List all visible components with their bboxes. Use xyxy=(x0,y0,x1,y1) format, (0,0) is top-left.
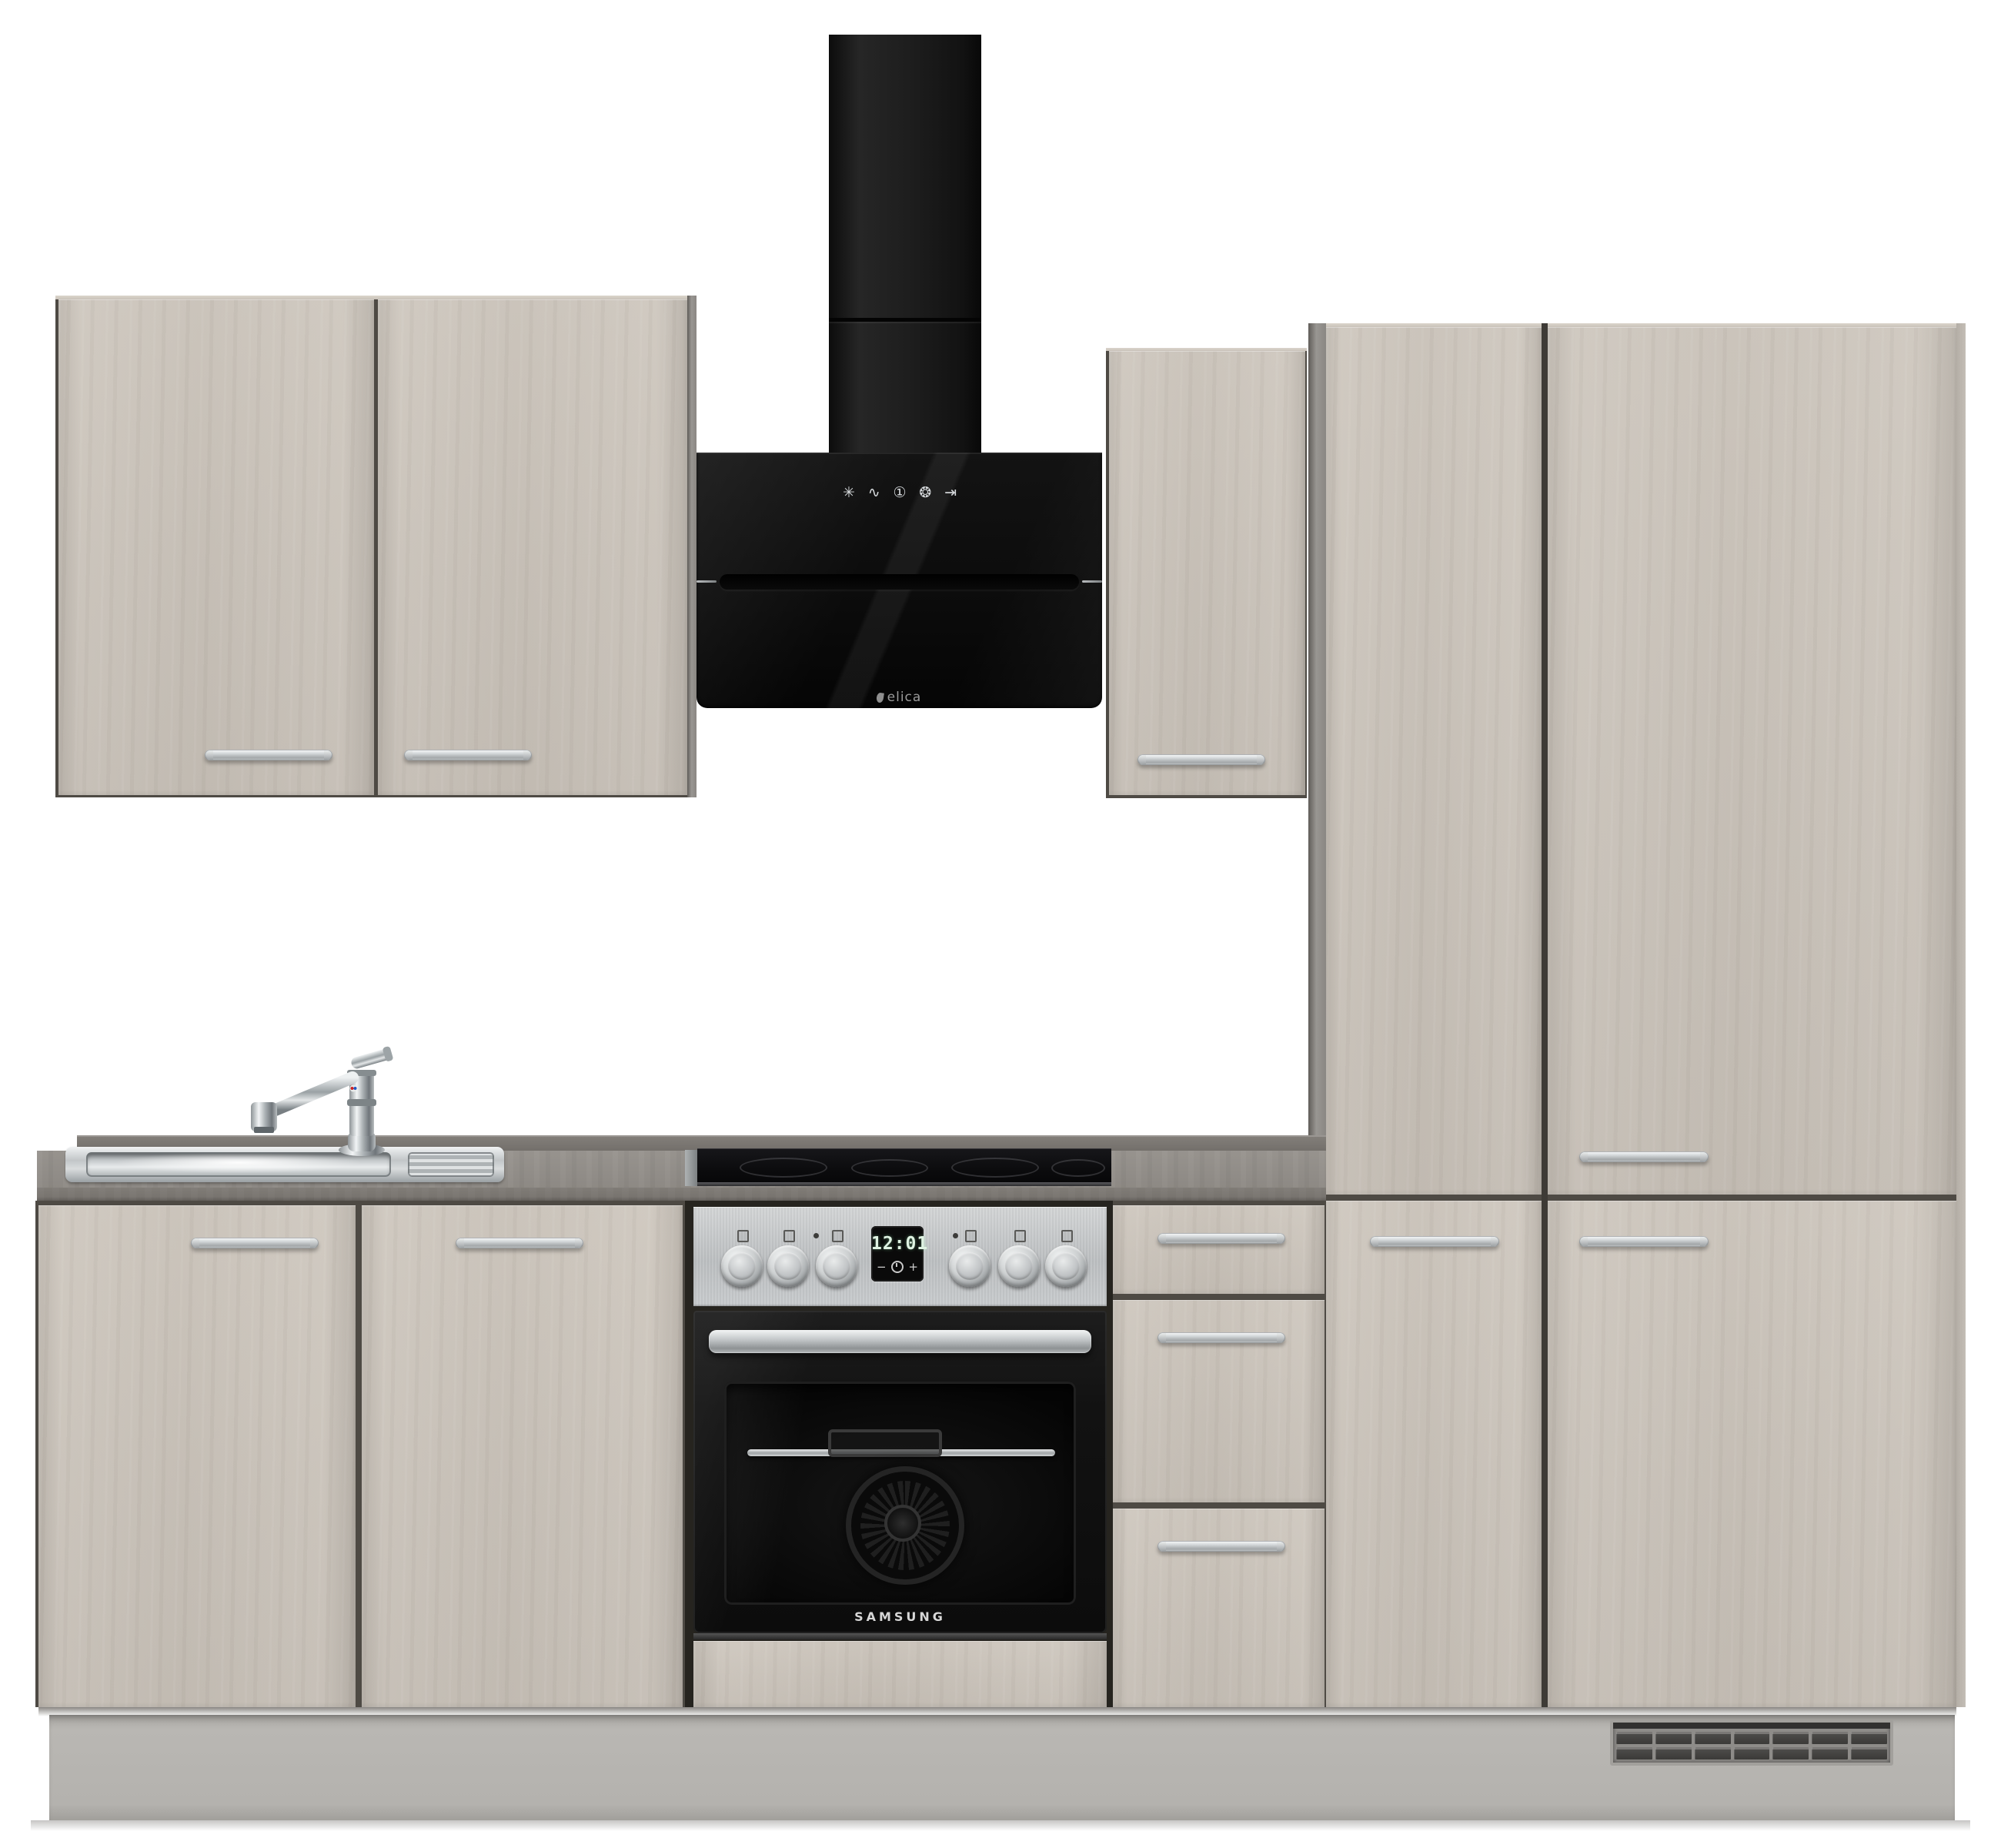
wall-cabinet-left-door-2[interactable] xyxy=(378,299,687,795)
cook-zone-icon xyxy=(1014,1230,1026,1242)
cook-zone xyxy=(740,1158,827,1178)
plinth-vent-grille xyxy=(1610,1719,1893,1766)
grille-slat xyxy=(1851,1732,1887,1744)
grille-slat xyxy=(1812,1732,1848,1744)
cook-zone xyxy=(951,1158,1039,1178)
wall-cabinet-left-door-1[interactable] xyxy=(58,299,374,795)
door-handle[interactable] xyxy=(191,1238,319,1248)
tall-cabinet-left-lower-door[interactable] xyxy=(1326,1201,1542,1707)
grille-slat xyxy=(1695,1747,1731,1759)
grille-slat xyxy=(1812,1747,1848,1759)
plinth xyxy=(49,1715,1955,1820)
oven-clock-display: 12:01 − + xyxy=(871,1226,924,1282)
elica-leaf-icon xyxy=(876,692,884,703)
oven-knob[interactable] xyxy=(816,1245,857,1287)
floor-shadow xyxy=(31,1820,1970,1831)
cook-zone-icon xyxy=(1061,1230,1073,1242)
cabinet-side-panel xyxy=(687,296,697,797)
sink-base-door-2[interactable] xyxy=(362,1205,683,1707)
hood-brand-text: elica xyxy=(887,690,922,705)
boost-icon[interactable]: ∿ xyxy=(868,486,880,500)
tall-cabinet-block xyxy=(1326,323,1956,1707)
oven-knob[interactable] xyxy=(998,1245,1040,1287)
oven-brand-logo: SAMSUNG xyxy=(693,1609,1107,1624)
timer-icon[interactable]: ⇥ xyxy=(944,486,957,500)
tall-cabinet-right-upper-door[interactable] xyxy=(1548,327,1956,1195)
drawer-3[interactable] xyxy=(1113,1509,1325,1707)
tall-cabinet-divider xyxy=(1542,323,1548,1707)
oven-knob[interactable] xyxy=(1045,1245,1087,1287)
oven-hinge-strip xyxy=(693,1633,1107,1639)
countertop-front-edge xyxy=(37,1188,1326,1201)
clock-plus-button[interactable]: + xyxy=(908,1260,918,1274)
grille-slat xyxy=(1655,1732,1692,1744)
oven-tray-outline xyxy=(828,1429,942,1457)
tall-unit-right-side xyxy=(1956,323,1966,1707)
hood-touch-controls: ✳ ∿ ① ❂ ⇥ xyxy=(843,483,957,502)
door-handle[interactable] xyxy=(1579,1236,1709,1247)
grille-slat xyxy=(1772,1747,1809,1759)
grille-slat xyxy=(1772,1732,1809,1744)
oven-door-handle[interactable] xyxy=(709,1330,1091,1353)
hood-trim-right xyxy=(1082,580,1102,583)
hood-intake-slot xyxy=(720,574,1079,590)
oven-knob[interactable] xyxy=(767,1245,809,1287)
oven-clock-time: 12:01 xyxy=(871,1234,924,1254)
cooktop-trim-left xyxy=(685,1150,697,1186)
faucet[interactable] xyxy=(215,1041,396,1156)
cook-zone-icon xyxy=(965,1230,977,1242)
wall-cabinet-right-door[interactable] xyxy=(1109,351,1305,795)
grille-slats xyxy=(1613,1729,1890,1763)
door-handle[interactable] xyxy=(404,750,532,760)
grille-slat xyxy=(1734,1732,1770,1744)
oven-door-window xyxy=(724,1382,1076,1605)
drawer-2[interactable] xyxy=(1113,1300,1325,1502)
grille-slat xyxy=(1851,1747,1887,1759)
cooktop-front-bevel xyxy=(697,1182,1111,1186)
kitchen-product-image: ✳ ∿ ① ❂ ⇥ elica xyxy=(0,0,2001,1848)
drawer-1[interactable] xyxy=(1113,1205,1325,1294)
door-handle[interactable] xyxy=(1579,1151,1709,1162)
oven-clock-buttons: − + xyxy=(871,1260,924,1274)
oven-knob[interactable] xyxy=(949,1245,990,1287)
tall-unit-side-panel xyxy=(1308,323,1326,1135)
grille-slat xyxy=(1655,1747,1692,1759)
oven-housing: 12:01 − + SAMSUNG xyxy=(685,1201,1113,1707)
sink-drainer xyxy=(408,1152,494,1177)
cook-zone-icon xyxy=(737,1230,749,1242)
wall-cabinet-left xyxy=(55,296,697,797)
range-hood: ✳ ∿ ① ❂ ⇥ elica xyxy=(697,453,1102,708)
hood-trim-left xyxy=(697,580,717,583)
cook-zone-icon xyxy=(832,1230,843,1242)
fan-speed-icon[interactable]: ✳ xyxy=(843,486,855,500)
wall-cabinet-right xyxy=(1106,348,1307,798)
door-handle[interactable] xyxy=(1137,754,1265,765)
cook-zone xyxy=(851,1159,928,1177)
oven-control-panel: 12:01 − + xyxy=(693,1207,1107,1306)
power-icon[interactable]: ① xyxy=(893,486,906,500)
oven-fan-hub xyxy=(884,1505,921,1542)
hood-brand-logo: elica xyxy=(853,690,945,705)
grille-slat xyxy=(1734,1747,1770,1759)
door-handle[interactable] xyxy=(1370,1236,1499,1247)
drawer-handle[interactable] xyxy=(1158,1233,1285,1244)
door-handle[interactable] xyxy=(456,1238,583,1248)
grille-slat xyxy=(1616,1747,1652,1759)
indicator-dot xyxy=(953,1233,958,1238)
grille-top-slot xyxy=(1613,1723,1890,1729)
clock-minus-button[interactable]: − xyxy=(877,1260,887,1274)
cook-zone xyxy=(1051,1159,1105,1177)
oven-door[interactable]: SAMSUNG xyxy=(693,1311,1107,1633)
door-handle[interactable] xyxy=(205,750,332,760)
chimney-joint xyxy=(829,318,981,322)
indicator-dot xyxy=(813,1233,819,1238)
tall-cabinet-left-upper-door[interactable] xyxy=(1326,327,1542,1195)
drawer-handle[interactable] xyxy=(1158,1332,1285,1343)
hood-chimney xyxy=(829,35,981,453)
oven-knob[interactable] xyxy=(721,1245,763,1287)
grille-slat xyxy=(1695,1732,1731,1744)
cook-zone-icon xyxy=(783,1230,795,1242)
oven-base-filler xyxy=(693,1641,1107,1707)
drawer-handle[interactable] xyxy=(1158,1541,1285,1552)
light-icon[interactable]: ❂ xyxy=(919,486,931,500)
sink-base-door-1[interactable] xyxy=(38,1205,356,1707)
clock-icon xyxy=(891,1261,904,1273)
tall-cabinet-right-lower-door[interactable] xyxy=(1548,1201,1956,1707)
grille-slat xyxy=(1616,1732,1652,1744)
induction-cooktop xyxy=(697,1148,1111,1186)
